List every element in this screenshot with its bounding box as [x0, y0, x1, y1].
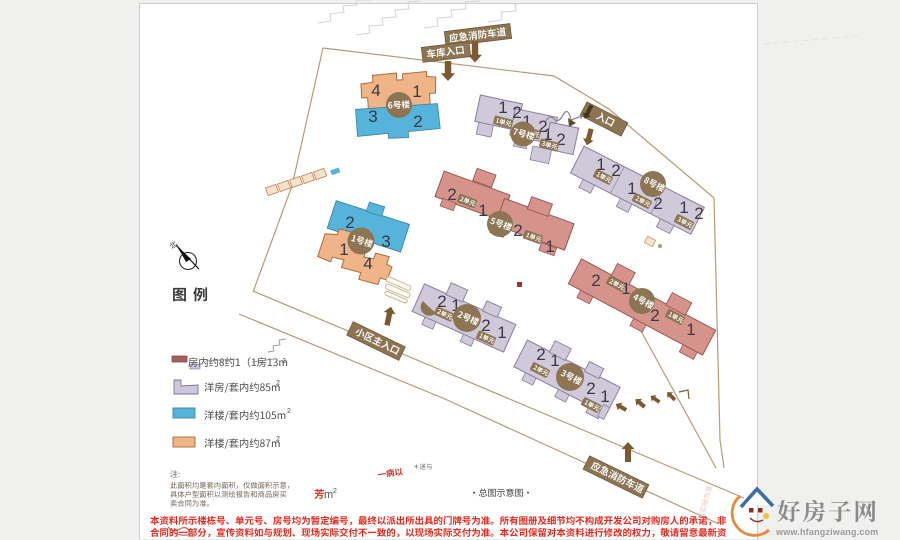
- svg-text:m: m: [324, 489, 333, 501]
- svg-text:1: 1: [686, 320, 695, 339]
- svg-text:3: 3: [368, 107, 377, 126]
- svg-text:www.hfangziwang.com: www.hfangziwang.com: [775, 527, 878, 537]
- svg-text:1: 1: [600, 387, 609, 406]
- svg-text:2: 2: [333, 488, 337, 495]
- svg-text:1: 1: [679, 198, 688, 217]
- svg-text:2: 2: [694, 204, 703, 223]
- svg-text:2: 2: [536, 345, 545, 364]
- svg-text:1: 1: [339, 240, 348, 259]
- svg-text:2: 2: [276, 380, 280, 387]
- svg-text:2: 2: [653, 194, 662, 213]
- svg-text:2: 2: [282, 358, 286, 365]
- svg-text:4: 4: [363, 254, 372, 273]
- svg-text:2: 2: [591, 271, 600, 290]
- svg-text:3: 3: [381, 232, 390, 251]
- svg-text:2: 2: [447, 185, 456, 204]
- svg-text:2: 2: [287, 408, 291, 415]
- svg-text:2: 2: [586, 379, 595, 398]
- svg-text:1: 1: [497, 323, 506, 342]
- svg-text:1: 1: [478, 201, 487, 220]
- svg-text:1: 1: [412, 82, 421, 101]
- svg-text:2: 2: [513, 221, 522, 240]
- svg-text:2: 2: [512, 103, 521, 122]
- svg-text:1: 1: [545, 237, 554, 256]
- svg-text:1: 1: [498, 98, 507, 117]
- svg-text:2: 2: [345, 213, 354, 232]
- svg-text:4: 4: [371, 81, 380, 100]
- svg-text:2: 2: [413, 112, 422, 131]
- svg-text:1: 1: [550, 351, 559, 370]
- svg-text:2: 2: [276, 436, 280, 443]
